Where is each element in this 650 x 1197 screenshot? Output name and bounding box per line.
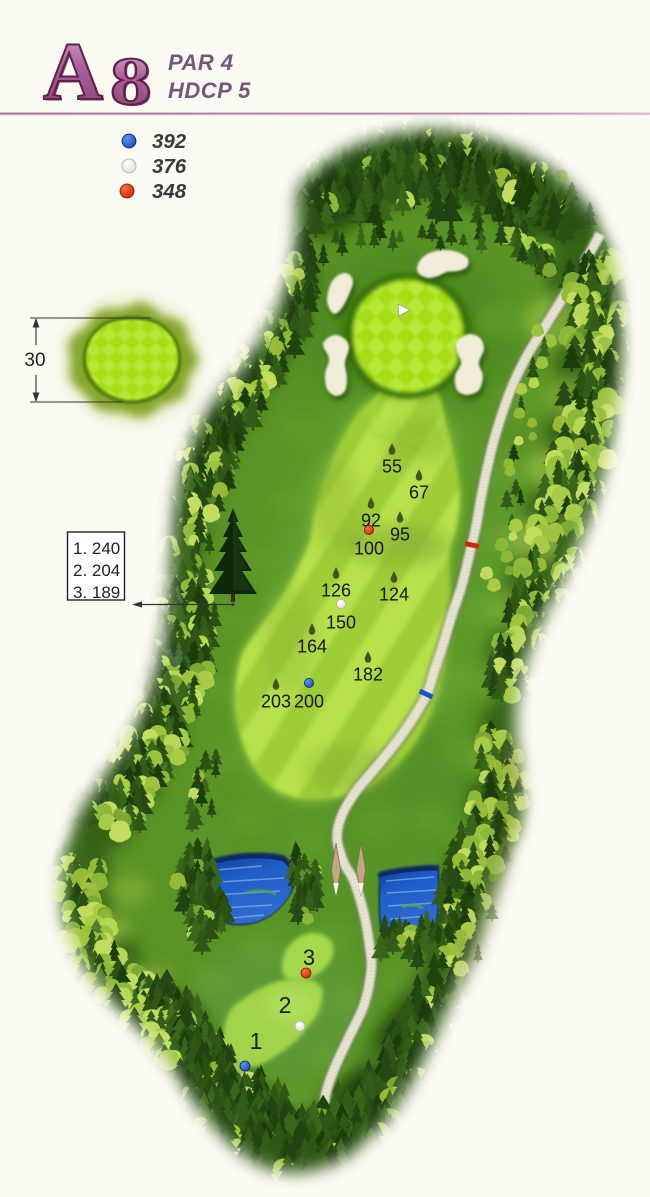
svg-text:203: 203 <box>261 692 291 712</box>
svg-text:100: 100 <box>354 539 384 559</box>
svg-text:PAR 4: PAR 4 <box>168 50 234 75</box>
svg-text:1: 1 <box>250 1028 263 1054</box>
svg-text:200: 200 <box>294 692 324 712</box>
svg-text:55: 55 <box>382 457 402 477</box>
svg-text:392: 392 <box>152 130 187 153</box>
svg-text:8: 8 <box>110 44 151 119</box>
svg-text:3. 189: 3. 189 <box>73 583 120 602</box>
svg-text:348: 348 <box>152 180 187 203</box>
svg-text:150: 150 <box>326 613 356 633</box>
svg-text:182: 182 <box>353 665 383 685</box>
svg-text:2: 2 <box>279 992 292 1018</box>
svg-text:67: 67 <box>409 483 429 503</box>
svg-text:376: 376 <box>152 155 187 178</box>
svg-text:95: 95 <box>390 525 410 545</box>
svg-text:126: 126 <box>321 581 351 601</box>
svg-text:124: 124 <box>379 585 409 605</box>
svg-text:HDCP 5: HDCP 5 <box>168 78 251 103</box>
svg-text:30: 30 <box>24 350 45 371</box>
svg-text:1. 240: 1. 240 <box>73 539 120 558</box>
svg-text:2. 204: 2. 204 <box>73 561 120 580</box>
svg-text:3: 3 <box>303 945 315 970</box>
svg-text:A: A <box>43 25 103 117</box>
svg-text:164: 164 <box>297 637 327 657</box>
